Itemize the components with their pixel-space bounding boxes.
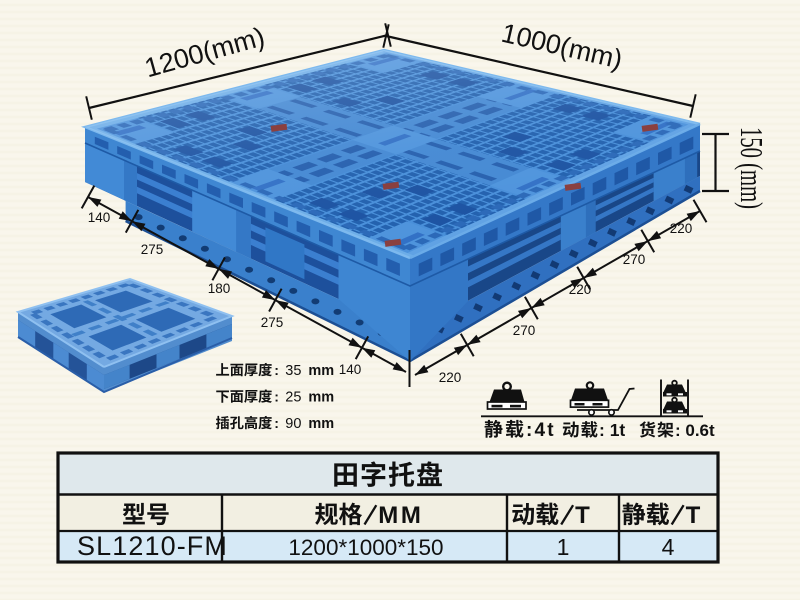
svg-text:140: 140 [339,362,362,377]
svg-text:270: 270 [513,323,536,338]
svg-text:T: T [686,502,703,529]
svg-text::: : [274,362,279,378]
svg-text:275: 275 [261,315,284,330]
svg-text:1: 1 [557,534,570,560]
svg-text:mm: mm [308,390,334,406]
svg-text:270: 270 [623,252,646,267]
svg-text:: 0.6t: : 0.6t [675,421,715,440]
svg-text:220: 220 [670,221,693,236]
svg-text:220: 220 [439,370,462,385]
svg-text:25: 25 [285,390,301,406]
svg-text:35: 35 [285,363,301,379]
svg-text:275: 275 [141,242,164,257]
svg-text:140: 140 [88,210,111,225]
svg-text:90: 90 [285,416,301,432]
svg-text:SL1210-FM: SL1210-FM [77,531,228,561]
svg-text:mm: mm [308,363,334,379]
svg-text:180: 180 [208,281,231,296]
svg-text:mm: mm [308,416,334,432]
svg-text:MM: MM [378,502,423,529]
svg-text::4t: :4t [526,420,556,441]
svg-text:1200*1000*150: 1200*1000*150 [288,535,443,560]
svg-text::: : [274,415,279,431]
svg-text:220: 220 [569,282,592,297]
svg-text:T: T [575,502,592,529]
svg-text:1200(mm): 1200(mm) [141,21,268,83]
svg-text:: 1t: : 1t [599,420,625,440]
svg-text:150 (mm): 150 (mm) [734,127,769,209]
svg-text:4: 4 [662,534,675,560]
svg-text::: : [274,389,279,405]
